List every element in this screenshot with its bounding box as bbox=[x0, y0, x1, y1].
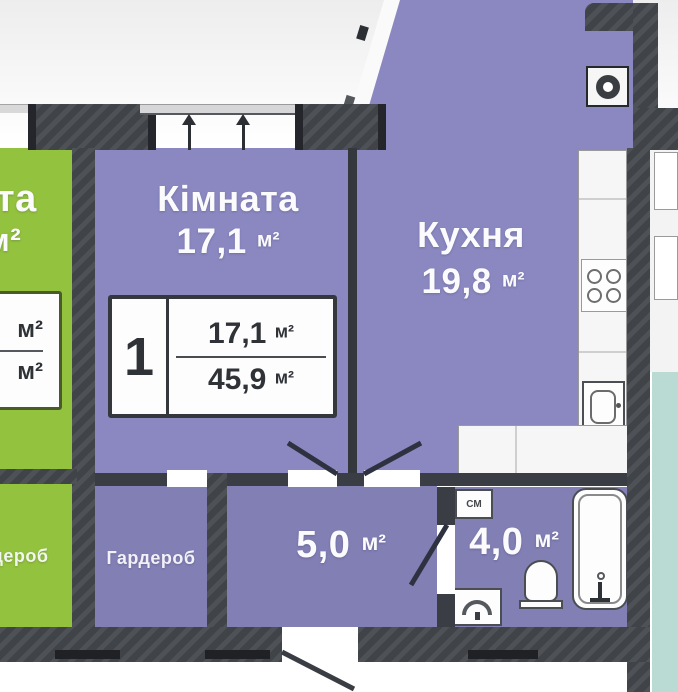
stove-icon bbox=[581, 259, 627, 312]
unit-rooms-count: 1 bbox=[112, 299, 169, 414]
kitchen-counter-bottom bbox=[458, 425, 630, 477]
kitchen-name-label: Кухня bbox=[371, 214, 571, 256]
bay-wall-right bbox=[633, 3, 658, 113]
window-wall-line bbox=[140, 104, 296, 115]
adjacent-fixture-icon bbox=[654, 152, 678, 210]
counter-seam bbox=[579, 198, 626, 200]
neighbor-label-top: м² bbox=[0, 316, 43, 344]
washer-tag-box: СМ bbox=[455, 489, 493, 519]
wall-tick bbox=[55, 650, 120, 659]
counter-seam bbox=[515, 426, 517, 476]
unit-living-area: 17,1 м² bbox=[208, 317, 294, 351]
wall-top-mid bbox=[295, 104, 386, 150]
wardrobe-label: Гардероб bbox=[95, 548, 207, 569]
counter-seam bbox=[579, 351, 626, 353]
wall-hall-partition bbox=[420, 473, 649, 486]
wall-bottom-right bbox=[358, 627, 650, 662]
room-area-label: 17,1 м² bbox=[110, 222, 346, 262]
entrance-door-opening bbox=[282, 627, 358, 662]
room-door-opening bbox=[288, 470, 337, 487]
neighbor-wardrobe-label: Гардероб bbox=[0, 546, 60, 567]
toilet-base bbox=[519, 600, 563, 609]
kitchen-sink-icon bbox=[582, 381, 625, 428]
vent-shaft-icon bbox=[586, 66, 629, 107]
tub-drain bbox=[597, 572, 605, 580]
wall-top-right bbox=[633, 108, 678, 150]
wall-neighbor-partition bbox=[0, 469, 77, 484]
washer-tag-text: СМ bbox=[466, 499, 481, 510]
wall-hall-partition bbox=[95, 473, 167, 486]
window-mark-arrow-icon bbox=[182, 114, 196, 152]
window-mark-arrow-icon bbox=[236, 114, 250, 152]
tub-faucet bbox=[590, 598, 610, 602]
floor-plan: Кімната 17,1 м² Кухня 19,8 м² 5,0 м² 4,0… bbox=[0, 0, 678, 692]
wardrobe-opening bbox=[167, 470, 207, 487]
outer-wall-line-left bbox=[0, 104, 28, 113]
neighbor-unit-label-box: м² м² bbox=[0, 291, 62, 410]
unit-total-area: 45,9 м² bbox=[208, 363, 294, 397]
kitchen-area-label: 19,8 м² bbox=[373, 262, 573, 302]
washing-machine-icon bbox=[452, 588, 502, 626]
wall-right-outer bbox=[627, 148, 650, 692]
adjacent-fixture-icon bbox=[654, 236, 678, 300]
wall-room-kitchen-divider bbox=[348, 148, 357, 480]
unit-label-divider bbox=[176, 356, 326, 358]
toilet-icon bbox=[524, 560, 558, 602]
wall-tick bbox=[468, 650, 538, 659]
neighbor-room-name-fragment: та bbox=[0, 178, 56, 221]
wall-bottom-left bbox=[0, 627, 282, 662]
wall-bathroom-left-upper bbox=[437, 487, 455, 525]
kitchen-door-opening bbox=[364, 470, 420, 487]
neighbor-room-area-fragment: м² bbox=[0, 222, 36, 259]
unit-label-box: 1 17,1 м² 45,9 м² bbox=[108, 295, 337, 418]
room-name-label: Кімната bbox=[110, 178, 346, 220]
wall-bathroom-left-lower bbox=[437, 594, 455, 628]
neighbor-label-divider bbox=[0, 350, 43, 352]
wall-neighbor-divider bbox=[72, 148, 95, 628]
wall-hall-partition bbox=[227, 473, 288, 486]
neighbor-label-bottom: м² bbox=[0, 358, 43, 386]
wall-wardrobe-right bbox=[207, 473, 227, 628]
wall-tick bbox=[205, 650, 270, 659]
wall-hall-partition bbox=[337, 473, 364, 486]
adjacent-teal-area bbox=[652, 372, 678, 692]
hallway-area-label: 5,0 м² bbox=[241, 524, 441, 567]
wall-top-left bbox=[28, 104, 156, 150]
bathroom-area-label: 4,0 м² bbox=[424, 521, 604, 564]
